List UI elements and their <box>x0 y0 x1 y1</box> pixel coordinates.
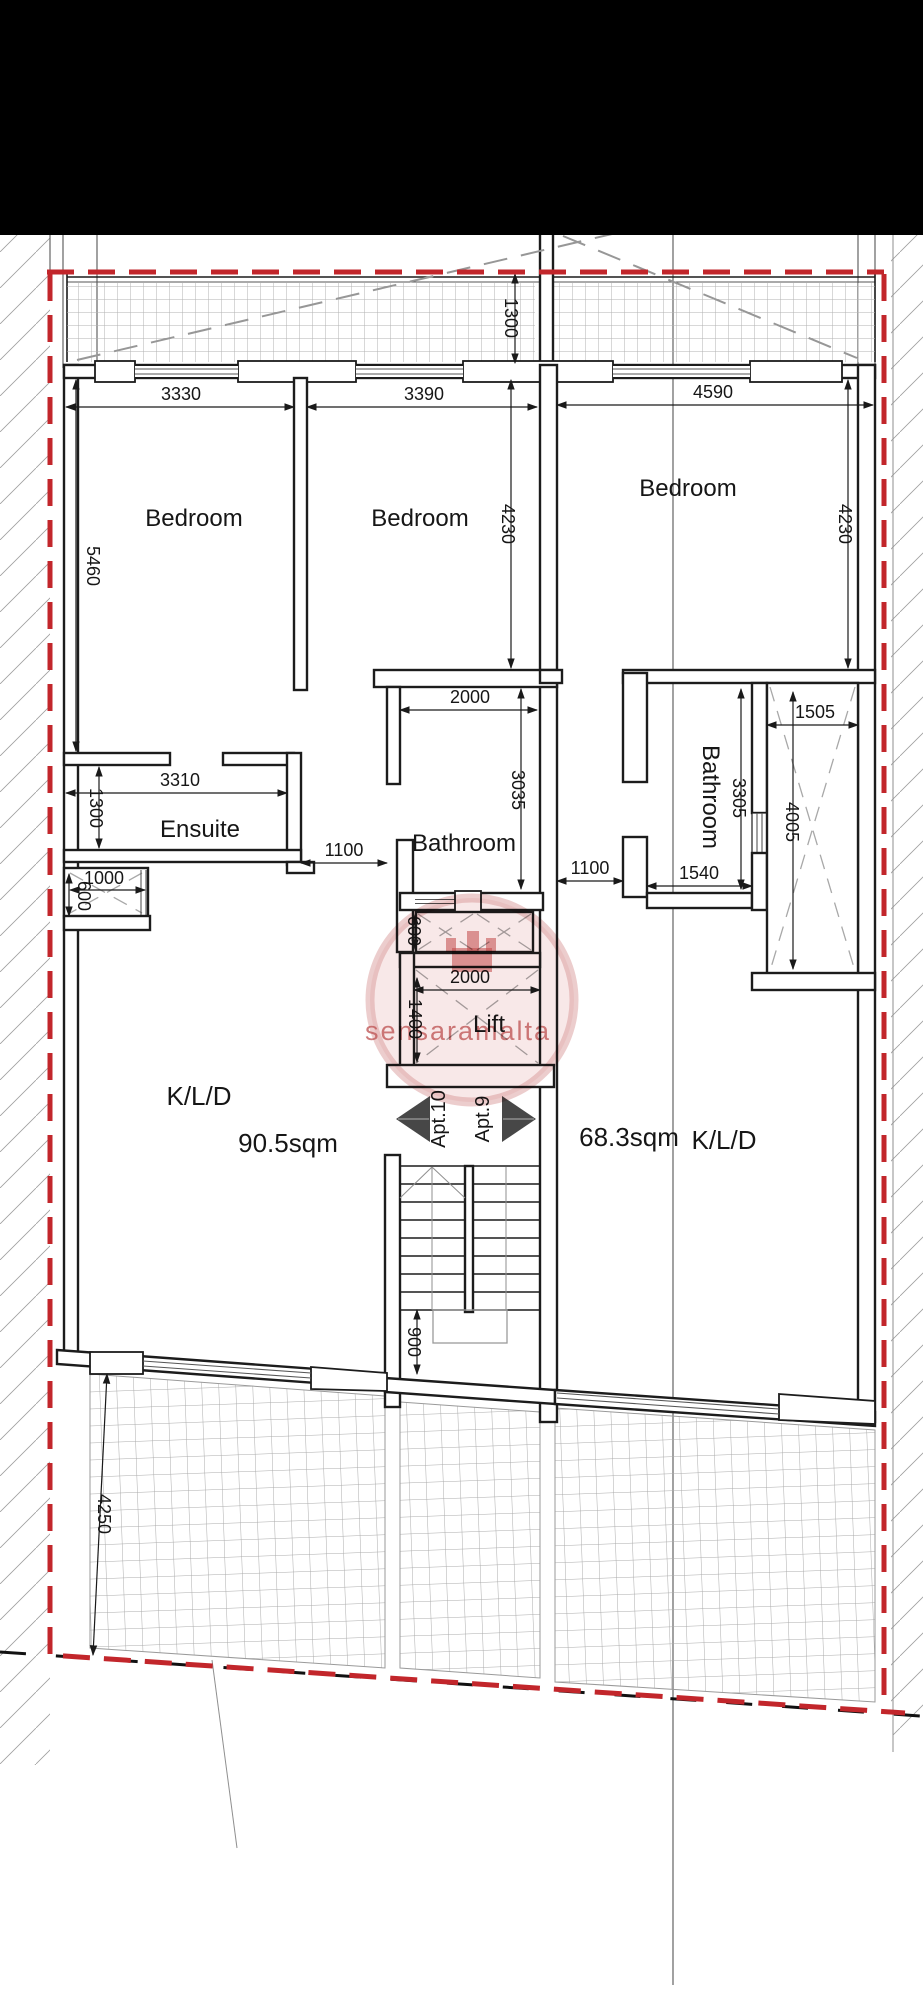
dim-bathroom-left-width: 2000 <box>450 687 490 707</box>
area-label-apt9: 68.3sqm <box>579 1122 679 1152</box>
wall-ensuite-right <box>287 753 301 865</box>
facade-pier <box>750 361 842 382</box>
bottom-terrace <box>90 1374 875 1702</box>
wall-bathroom-right-upper <box>623 673 647 782</box>
watermark-circle <box>370 898 574 1102</box>
room-label-bathroom-right: Bathroom <box>697 745 724 849</box>
top-black-bar <box>0 0 923 235</box>
window <box>613 366 750 377</box>
top-terrace-hatch-left <box>67 283 535 362</box>
dim-ensuite-depth: 1300 <box>86 788 106 828</box>
service-shaft-right <box>767 683 858 975</box>
bottom-terrace-hatch-left <box>90 1374 385 1668</box>
wall-shaft-bottom <box>752 973 875 990</box>
wall-bedroom2-bottom <box>374 670 557 687</box>
room-label-bedroom-1: Bedroom <box>145 505 242 532</box>
facade-pier <box>463 361 613 382</box>
wall-bedroom1-bottom-left <box>64 753 170 765</box>
room-label-kld-left: K/L/D <box>166 1081 231 1111</box>
wall-bathroom-right-lower <box>623 837 647 897</box>
wall-bathroom-right-bottom <box>647 893 752 908</box>
wall-bedroom3-bottom-left <box>540 670 562 683</box>
bottom-terrace-hatch-right <box>555 1408 875 1702</box>
facade-pier <box>95 361 135 382</box>
facade-pier <box>90 1352 143 1374</box>
room-label-kld-right: K/L/D <box>691 1125 756 1155</box>
room-label-bathroom-left: Bathroom <box>412 830 516 857</box>
dim-shaft-left-depth: 600 <box>74 881 94 911</box>
floor-plan-svg: 3330 3390 4590 1300 5460 4230 4230 2000 … <box>0 0 923 2000</box>
dim-bedroom3-depth: 4230 <box>835 504 855 544</box>
wall-bedroom1-bottom-right <box>223 753 294 765</box>
wall-bedroom3-bottom-right <box>623 670 875 683</box>
window <box>135 366 238 377</box>
watermark: sensaramalta <box>365 898 574 1102</box>
dim-bathroom-left-depth: 3035 <box>508 770 528 810</box>
dim-back-terrace-depth: 4250 <box>94 1494 114 1534</box>
neighbor-hatch-right <box>891 235 923 1735</box>
room-label-ensuite: Ensuite <box>160 816 240 843</box>
apartment-entrance-gap <box>542 1094 556 1150</box>
dim-bedroom1-width: 3330 <box>161 384 201 404</box>
neighbor-hatch-left <box>0 235 50 1765</box>
wall-ensuite-bottom <box>64 850 301 862</box>
dim-ensuite-width: 3310 <box>160 770 200 790</box>
floor-plan-page: 3330 3390 4590 1300 5460 4230 4230 2000 … <box>0 0 923 2000</box>
exterior-wall-right <box>858 365 875 1422</box>
dim-shaft-right-width: 1505 <box>795 702 835 722</box>
dim-stair-landing: 900 <box>404 1327 424 1357</box>
room-label-bedroom-3: Bedroom <box>639 475 736 502</box>
terrace-divider-wall <box>540 233 553 365</box>
area-label-apt10: 90.5sqm <box>238 1128 338 1158</box>
wall-bathroom-shaft-lower <box>752 853 767 910</box>
bottom-terrace-hatch-middle <box>400 1402 540 1678</box>
dim-bedroom3-width: 4590 <box>693 382 733 402</box>
wall-bedroom1-bedroom2 <box>294 378 307 690</box>
dim-bedroom2-depth: 4230 <box>498 504 518 544</box>
dim-shaft-right-depth: 4005 <box>782 802 802 842</box>
dim-bathroom-right-width: 1540 <box>679 863 719 883</box>
window <box>356 366 463 377</box>
window <box>752 813 767 853</box>
dim-bathroom-right-depth: 3305 <box>729 778 749 818</box>
wall-stub <box>287 862 314 873</box>
dim-bedroom2-width: 3390 <box>404 384 444 404</box>
watermark-text: sensaramalta <box>365 1016 551 1046</box>
room-label-bedroom-2: Bedroom <box>371 505 468 532</box>
wall-bathroom-shaft-upper <box>752 683 767 813</box>
wall-bathroom-left-upper <box>387 687 400 784</box>
top-terrace-hatch-right <box>552 283 875 362</box>
dim-terrace-depth: 1300 <box>501 298 521 338</box>
dim-corridor-left: 1100 <box>325 840 364 860</box>
wall-stairs-left <box>385 1155 400 1407</box>
dim-corridor-right: 1100 <box>571 858 610 878</box>
wall-below-shaft <box>64 916 150 930</box>
dim-bedroom1-depth: 5460 <box>83 546 103 586</box>
